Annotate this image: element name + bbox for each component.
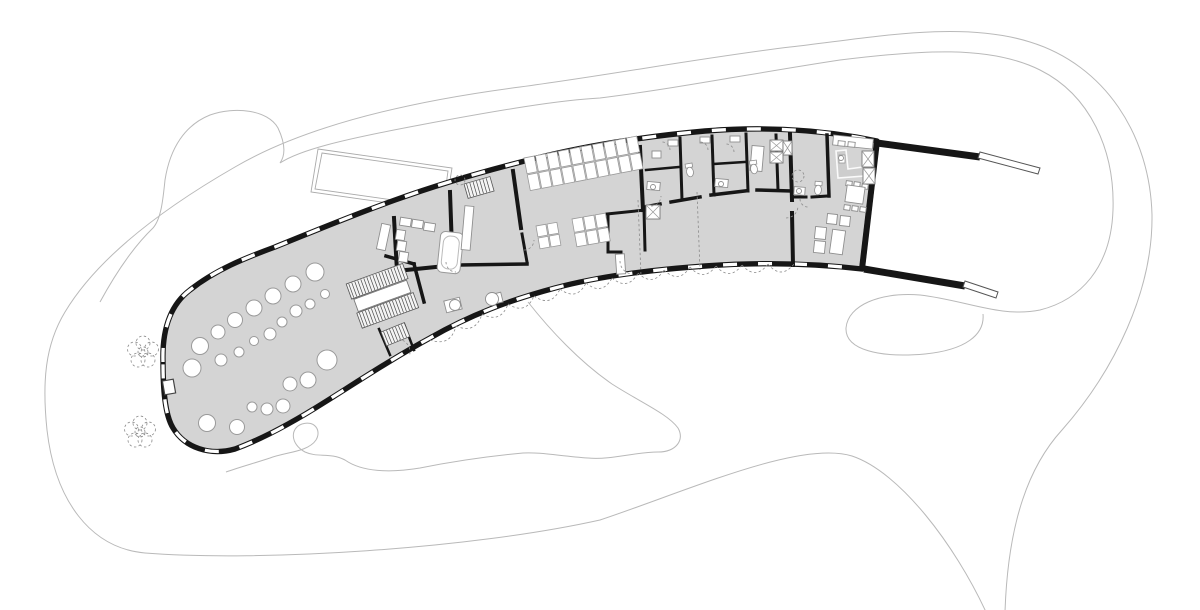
extension-wall-north — [877, 143, 980, 157]
wardrobe-unit — [770, 152, 783, 163]
column-circle — [199, 415, 216, 432]
wall — [792, 213, 793, 265]
furniture-rect — [845, 185, 865, 204]
column-circle — [228, 313, 243, 328]
furniture-rect — [838, 141, 845, 147]
furniture-rect — [852, 206, 859, 212]
furniture-rect — [844, 205, 851, 211]
furniture-rect — [399, 217, 411, 227]
site-extension-walls — [864, 143, 1040, 298]
column-circle — [300, 372, 316, 388]
basin-circle — [450, 300, 461, 311]
column-circle — [250, 337, 259, 346]
column-circle — [276, 399, 290, 413]
site-plan-canvas — [0, 0, 1200, 610]
furniture-rect — [827, 214, 838, 225]
furniture-rect — [730, 136, 740, 142]
column-circle — [290, 305, 302, 317]
shrub-cluster — [125, 416, 156, 447]
furniture-rect — [829, 229, 845, 255]
gridded-table-cell — [549, 234, 561, 247]
wall — [812, 196, 828, 197]
extension-wall-south-light — [963, 281, 998, 298]
column-circle — [285, 276, 301, 292]
basin-circle — [651, 185, 656, 190]
column-circle — [305, 299, 315, 309]
column-circle — [264, 328, 276, 340]
column-circle — [321, 290, 330, 299]
wardrobe-unit — [863, 168, 875, 184]
gridded-table-cell — [547, 222, 559, 235]
furniture-rect — [860, 207, 867, 213]
furniture-rect — [848, 142, 855, 148]
furniture-rect — [411, 219, 423, 229]
wall — [460, 264, 527, 265]
furniture-rect — [840, 216, 851, 227]
entrance-door-panel — [162, 379, 175, 395]
column-circle — [247, 402, 257, 412]
column-circle — [211, 325, 225, 339]
furniture-rect — [396, 240, 406, 251]
wall — [827, 135, 829, 196]
shrub-petal — [131, 353, 145, 367]
basin-circle — [719, 182, 724, 187]
shrub-petal — [128, 433, 142, 447]
furniture-rect — [668, 140, 678, 146]
wardrobe-unit — [770, 140, 783, 151]
column-circle — [183, 359, 201, 377]
column-circle — [306, 263, 324, 281]
gridded-table-cell — [598, 228, 611, 243]
gridded-table-cell — [586, 230, 599, 245]
gridded-table-cell — [536, 224, 548, 237]
wall — [680, 138, 682, 200]
column-circle — [215, 354, 227, 366]
column-circle — [246, 300, 262, 316]
gridded-table-cell — [595, 213, 608, 228]
bathtub — [437, 231, 464, 274]
column-circle — [230, 420, 245, 435]
bathtub-outer — [437, 231, 464, 274]
wardrobe-unit — [783, 141, 792, 155]
wardrobe-unit — [646, 205, 660, 219]
gridded-table-cell — [538, 236, 550, 249]
column-circle — [234, 347, 244, 357]
gridded-table-cell — [572, 217, 585, 232]
column-circle — [277, 317, 287, 327]
column-circle — [192, 338, 209, 355]
column-circle — [283, 377, 297, 391]
furniture-rect — [814, 226, 826, 239]
basin-circle — [797, 189, 802, 194]
wardrobe-unit — [862, 151, 874, 167]
gridded-table-cell — [575, 232, 588, 247]
column-circle — [265, 288, 281, 304]
door-leaf — [615, 254, 625, 275]
furniture-rect — [395, 229, 405, 240]
floor-plan-drawing — [0, 0, 1200, 610]
column-circle — [261, 403, 273, 415]
wall — [712, 136, 714, 195]
basin-circle — [486, 293, 499, 306]
wall — [644, 210, 645, 250]
extension-wall-south — [864, 269, 965, 286]
wall — [746, 134, 748, 191]
wall — [757, 190, 790, 191]
furniture-rect — [398, 251, 408, 262]
furniture-rect — [423, 222, 435, 232]
furniture-rect — [652, 151, 661, 158]
furniture-rect — [813, 240, 825, 253]
extension-wall-north-light — [978, 152, 1040, 174]
gridded-table-cell — [584, 215, 597, 230]
main-entrance-door — [162, 379, 175, 395]
shrub-cluster — [128, 336, 159, 367]
basin-circle — [839, 156, 844, 161]
column-circle — [317, 350, 337, 370]
